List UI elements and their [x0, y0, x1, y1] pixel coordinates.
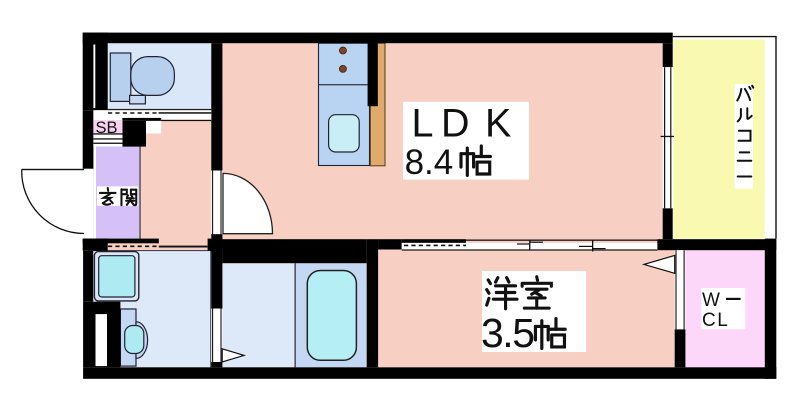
svg-text:CL: CL — [702, 310, 729, 331]
svg-text:8.4: 8.4 — [405, 143, 454, 182]
svg-text:L: L — [412, 101, 434, 145]
svg-text:W: W — [702, 290, 720, 311]
svg-text:K: K — [485, 101, 511, 145]
svg-text:3.5: 3.5 — [481, 310, 534, 356]
svg-text:D: D — [441, 101, 470, 145]
svg-text:SB: SB — [96, 119, 118, 137]
